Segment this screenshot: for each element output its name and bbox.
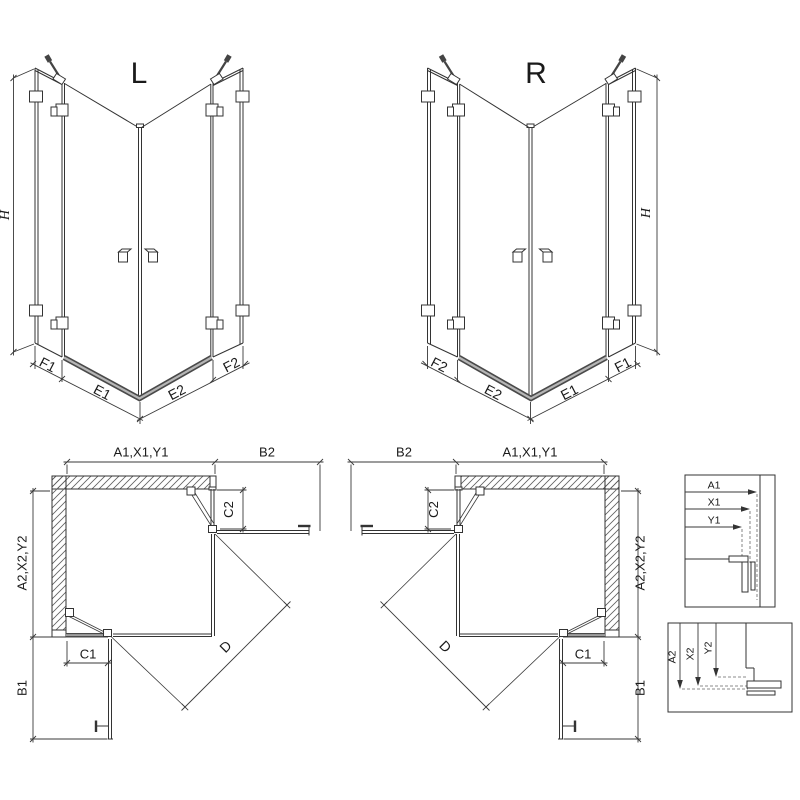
plan-view-right: A1,X1,Y1 B2 C2 A2,X2,Y2 D C1 B1	[348, 445, 648, 743]
detail-top-arrow-y1	[733, 524, 742, 530]
plan-right-dim-b2: B2	[396, 445, 412, 460]
front-right-dim-f1: F1	[612, 354, 634, 376]
front-left-dim-h: H	[0, 209, 13, 221]
front-left-view-label: L	[131, 57, 148, 90]
detail-top-arrow-x1	[741, 506, 750, 512]
plan-left-top-wall	[52, 476, 210, 489]
detail-bottom-frame	[668, 623, 792, 712]
plan-right-dim-a2x2y2: A2,X2,Y2	[633, 536, 648, 591]
plan-right-wall-bottom-cap	[605, 630, 619, 637]
plan-left-dim-c2: C2	[221, 501, 236, 518]
plan-right-drawing	[348, 459, 642, 743]
detail-bottom-arrow-x2	[695, 677, 701, 686]
plan-left-dim-d: D	[216, 637, 234, 655]
front-right-dim-f2: F2	[428, 354, 450, 376]
plan-left-dim-b2: B2	[259, 445, 275, 460]
plan-right-dim-d: D	[436, 637, 454, 655]
detail-box-bottom: A2 X2 Y2	[667, 623, 793, 712]
detail-top-label-y1: Y1	[708, 515, 721, 527]
plan-right-top-wall	[461, 476, 619, 489]
plan-left-side-wall	[52, 476, 66, 630]
detail-bottom-label-y2: Y2	[703, 641, 715, 654]
technical-drawing: L H F1 E1 E2 F2 R H F2 E2 E1 F1 A1,X1,Y1…	[0, 0, 800, 800]
plan-right-dim-a1x1y1: A1,X1,Y1	[503, 445, 558, 460]
plan-right-dim-c2: C2	[426, 501, 441, 518]
detail-top-label-a1: A1	[708, 480, 721, 492]
detail-top-frame	[685, 475, 775, 607]
plan-left-drawing	[30, 459, 324, 743]
front-view-right: R H F2 E2 E1 F1	[421, 56, 660, 425]
front-left-dim-f2: F2	[220, 354, 242, 376]
front-view-left: L H F1 E1 E2 F2	[0, 56, 250, 425]
plan-left-dim-b1: B1	[15, 680, 30, 696]
front-right-dim-h: H	[639, 207, 654, 219]
detail-top-label-x1: X1	[708, 497, 721, 509]
detail-bottom-arrow-a2	[677, 680, 683, 689]
plan-left-wall-bottom-cap	[52, 630, 66, 637]
detail-bottom-label-a2: A2	[667, 650, 679, 663]
front-left-dim-f1: F1	[37, 354, 59, 376]
plan-view-left: A1,X1,Y1 B2 C2 A2,X2,Y2 D C1 B1	[15, 445, 324, 743]
plan-left-dim-a2x2y2: A2,X2,Y2	[15, 536, 30, 591]
plan-right-side-wall	[605, 476, 619, 630]
detail-bottom-label-x2: X2	[685, 647, 697, 660]
detail-box-top: A1 X1 Y1	[685, 475, 775, 607]
detail-top-arrow-a1	[748, 489, 757, 495]
detail-bottom-arrow-y2	[713, 668, 719, 677]
plan-right-dim-b1: B1	[633, 680, 648, 696]
front-right-view-label: R	[525, 57, 547, 90]
plan-left-dim-a1x1y1: A1,X1,Y1	[114, 445, 169, 460]
plan-left-dim-c1: C1	[80, 647, 97, 662]
plan-right-dim-c1: C1	[575, 647, 592, 662]
